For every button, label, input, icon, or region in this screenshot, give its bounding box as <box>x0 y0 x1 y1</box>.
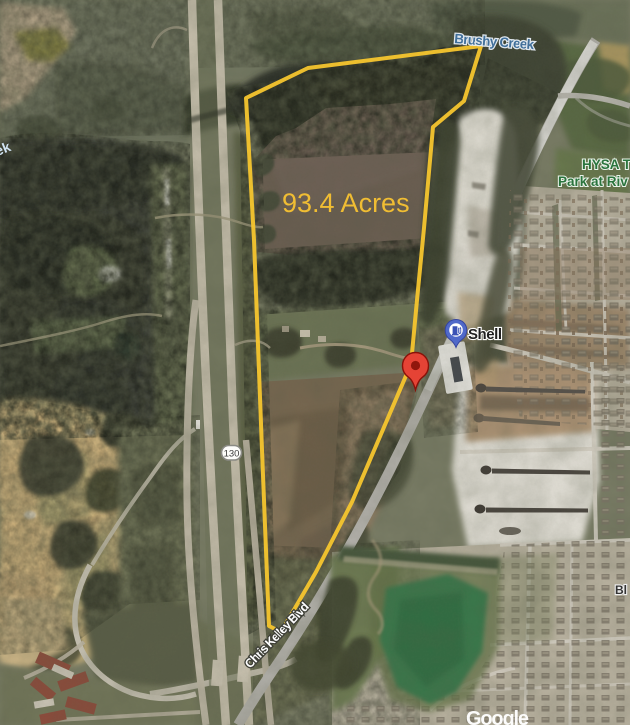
svg-text:Park at Riv: Park at Riv <box>558 174 628 189</box>
svg-text:HYSA T: HYSA T <box>582 157 630 172</box>
svg-text:Bl: Bl <box>615 583 627 597</box>
svg-text:130: 130 <box>224 449 240 460</box>
svg-text:Google: Google <box>466 708 529 725</box>
svg-text:93.4 Acres: 93.4 Acres <box>282 188 410 218</box>
svg-text:Shell: Shell <box>468 326 502 343</box>
